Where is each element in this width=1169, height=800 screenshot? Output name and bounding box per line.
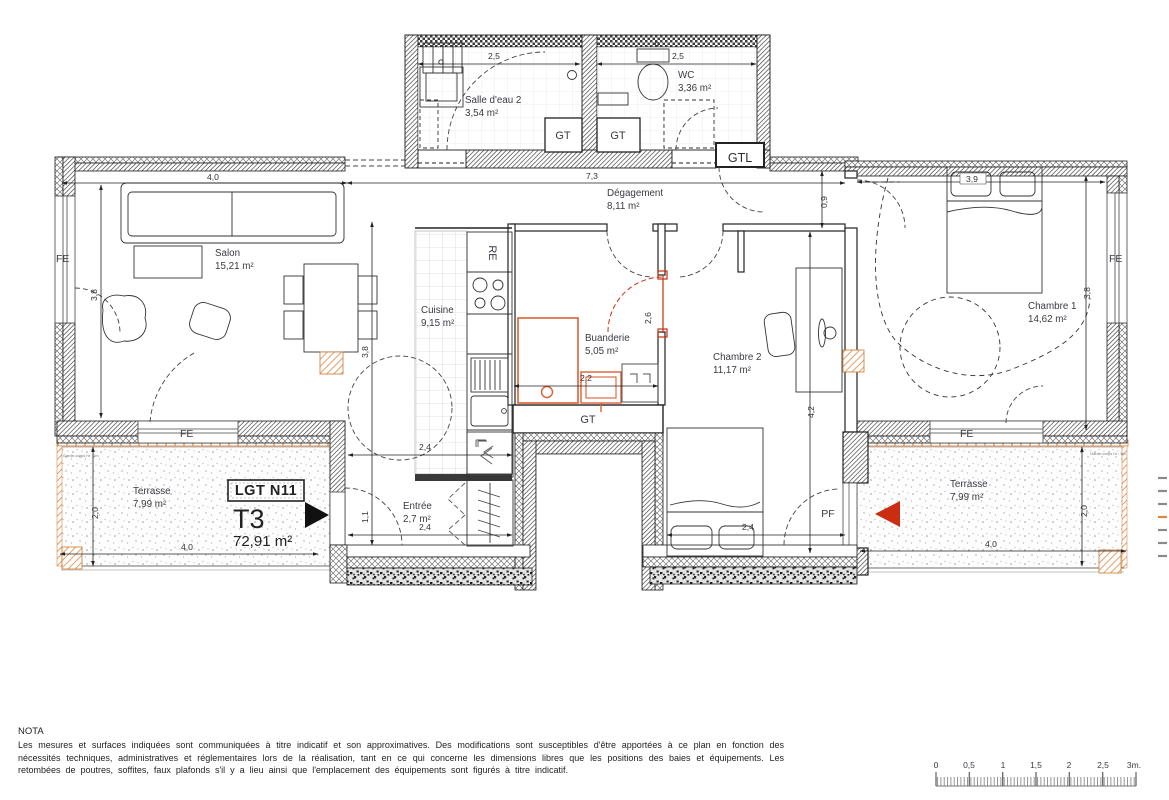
tag-pf: PF [821,508,834,520]
label-salon: Salon [215,248,240,259]
folding-door [448,483,465,545]
laundry-cabinet [622,364,658,402]
label-sde2: Salle d'eau 2 [465,95,521,106]
label-sde2-area: 3,54 m² [465,108,499,119]
label-wc: WC [678,70,694,81]
label-cuisine: Cuisine [421,305,454,316]
label-entree-area: 2,7 m² [403,514,432,525]
dim-salon-w: 4,0 [207,172,219,182]
dim-buanderie-w: 2,2 [580,373,592,383]
label-degagement: Dégagement [607,188,663,199]
door-arc-ch1-fe [1006,386,1043,423]
floor-plan-svg: 4,0 7,3 2,5 2,5 0,9 3,8 3,8 1,1 2,4 2,4 … [0,0,1169,800]
dim-ch2-w: 2,4 [742,522,754,532]
floor-plan-page: 4,0 7,3 2,5 2,5 0,9 3,8 3,8 1,1 2,4 2,4 … [0,0,1169,800]
label-entree: Entrée [403,501,432,512]
chair [284,276,303,304]
label-wc-area: 3,36 m² [678,83,712,94]
nota-title: NOTA [18,726,784,737]
lot-number: LGT N11 [235,483,297,499]
red-door-arc [608,277,663,332]
scale-label-25: 2,5 [1097,760,1109,770]
tag-gt-1: GT [555,130,571,142]
dim-ch1-w: 3,9 [966,174,978,184]
coffee-table [134,246,202,278]
chair [358,276,377,304]
dim-entree-top: 2,4 [419,442,431,452]
tag-fe-bottom-left: FE [180,428,193,440]
door-arc-salon-bottom [150,352,196,422]
bed-1 [947,167,1042,293]
monitor [819,319,826,347]
dim-degagement-w: 7,3 [586,171,598,181]
entrance-notch [515,433,663,590]
tag-gt-3: GT [580,414,596,426]
dim-ch2-v: 4,2 [806,406,816,418]
pf-door-opening [843,483,857,548]
gravel-strip-left [347,568,532,585]
door-arc-entree [345,488,402,545]
dining-table [304,264,358,352]
kitchen-cabinet [467,314,512,354]
tag-fe-right: FE [1109,253,1122,265]
gravel-strip-right [650,567,857,584]
nota-block: NOTA Les mesures et surfaces indiquées s… [18,726,784,777]
door-arc-wc-corridor [719,167,764,212]
sink-basin [471,396,508,426]
tag-garde-corps-left: Garde-corps ht : 1m [63,453,99,458]
terrace-left-post [62,547,82,569]
door-arc-buanderie [607,231,653,277]
dim-salon-v: 3,8 [89,289,99,301]
dim-ter-r-w: 4,0 [985,539,997,549]
chair [358,311,377,339]
label-chambre2-area: 11,17 m² [713,365,752,376]
unit-type: T3 [233,504,265,534]
scale-label-15: 1,5 [1030,760,1042,770]
tag-fe-bottom-right: FE [960,428,973,440]
scale-label-3m: 3m. [1127,760,1141,770]
bed-2 [667,428,763,556]
scale-label-05: 0,5 [963,760,975,770]
scale-bar: 0 0,5 1 1,5 2 2,5 3m. [934,760,1141,786]
label-chambre1: Chambre 1 [1028,301,1076,312]
dim-ch1-v: 3,8 [1082,287,1092,299]
cooktop [467,272,512,314]
tag-gtl: GTL [728,151,752,165]
dim-salon-aisle: 3,8 [360,346,370,358]
tag-fe-left: FE [56,253,69,265]
base-cabinet [467,430,512,474]
terrace-right-post [1099,550,1121,573]
terrace-left [57,440,330,570]
salon-furniture [102,183,377,374]
label-chambre1-area: 14,62 m² [1028,314,1067,325]
label-buanderie-area: 5,05 m² [585,346,619,357]
unit-area: 72,91 m² [233,533,292,550]
label-terrasse-right-area: 7,99 m² [950,492,984,503]
tag-gt-2: GT [610,130,626,142]
label-degagement-area: 8,11 m² [607,201,640,212]
scale-label-0: 0 [934,760,939,770]
door-arc-ch2-hall [677,231,723,277]
label-buanderie: Buanderie [585,333,630,344]
chambre1-furniture [876,167,1091,397]
dim-entree-v: 1,1 [360,511,370,523]
right-edge-strip [1158,478,1167,556]
entrance-door-opening [330,492,345,545]
dim-sde2: 2,5 [488,51,500,61]
scale-label-1: 1 [1001,760,1006,770]
kitchen-floor-tiles [415,231,467,474]
desk-chair [763,311,796,357]
label-terrasse-right: Terrasse [950,479,988,490]
washer [518,318,578,403]
dim-wc: 2,5 [672,51,684,61]
duct-post [843,350,864,372]
shoe-cabinet [467,432,513,477]
nota-body: Les mesures et surfaces indiquées sont c… [18,739,784,777]
tag-garde-corps-right: Garde-corps ht : 1m [1090,451,1126,456]
pouf-1 [102,295,146,342]
door-arc-ch1 [857,180,905,228]
chair [284,311,303,339]
dim-ter-r-v: 2,0 [1079,505,1089,517]
label-terrasse-left: Terrasse [133,486,171,497]
label-cuisine-area: 9,15 m² [421,318,455,329]
dim-ter-l-v: 2,0 [90,507,100,519]
pouf-2 [187,300,233,342]
turning-circle-ch1 [900,297,1000,397]
label-salon-area: 15,21 m² [215,261,254,272]
dim-buanderie-door: 2,6 [643,312,653,324]
column-post [320,352,343,374]
label-terrasse-left-area: 7,99 m² [133,499,167,510]
window-fe-bottom-right [930,421,1043,443]
dim-ter-l-w: 4,0 [181,542,193,552]
tag-re: RE [486,245,498,260]
scale-label-2: 2 [1067,760,1072,770]
dim-deg-v: 0,9 [819,196,829,208]
label-chambre2: Chambre 2 [713,352,761,363]
